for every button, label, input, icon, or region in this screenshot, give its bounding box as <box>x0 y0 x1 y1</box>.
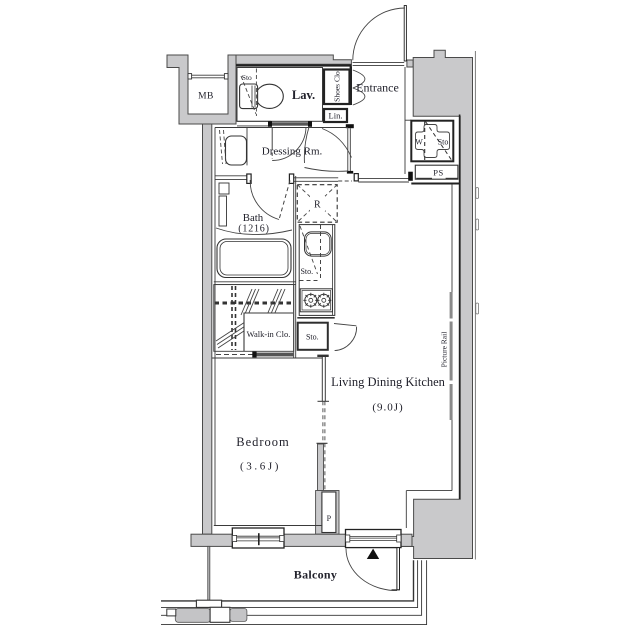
svg-text:Living Dining Kitchen: Living Dining Kitchen <box>331 375 446 389</box>
svg-text:(1216): (1216) <box>238 224 269 235</box>
svg-text:Bath: Bath <box>243 212 264 224</box>
svg-text:MB: MB <box>198 92 214 102</box>
svg-text:R: R <box>314 200 321 211</box>
svg-text:Shoes Clo: Shoes Clo <box>333 71 342 102</box>
svg-text:Balcony: Balcony <box>294 568 337 582</box>
svg-text:(3.6J): (3.6J) <box>240 461 281 473</box>
svg-text:Entrance: Entrance <box>356 81 399 95</box>
svg-text:PS: PS <box>433 168 443 178</box>
svg-text:Sto.: Sto. <box>300 267 313 276</box>
svg-text:Walk-in Clo.: Walk-in Clo. <box>247 329 291 339</box>
svg-text:Lin.: Lin. <box>329 111 343 121</box>
svg-text:Picture Rail: Picture Rail <box>439 332 448 368</box>
svg-text:Sto: Sto <box>438 138 449 147</box>
svg-text:Dressing Rm.: Dressing Rm. <box>262 146 323 158</box>
svg-text:Bedroom: Bedroom <box>236 435 290 449</box>
svg-text:Sto.: Sto. <box>306 333 319 342</box>
svg-text:W: W <box>415 138 423 147</box>
svg-text:P: P <box>327 514 332 523</box>
svg-text:Lav.: Lav. <box>292 88 315 102</box>
svg-text:(9.0J): (9.0J) <box>372 402 403 414</box>
svg-text:Sto: Sto <box>242 73 252 82</box>
